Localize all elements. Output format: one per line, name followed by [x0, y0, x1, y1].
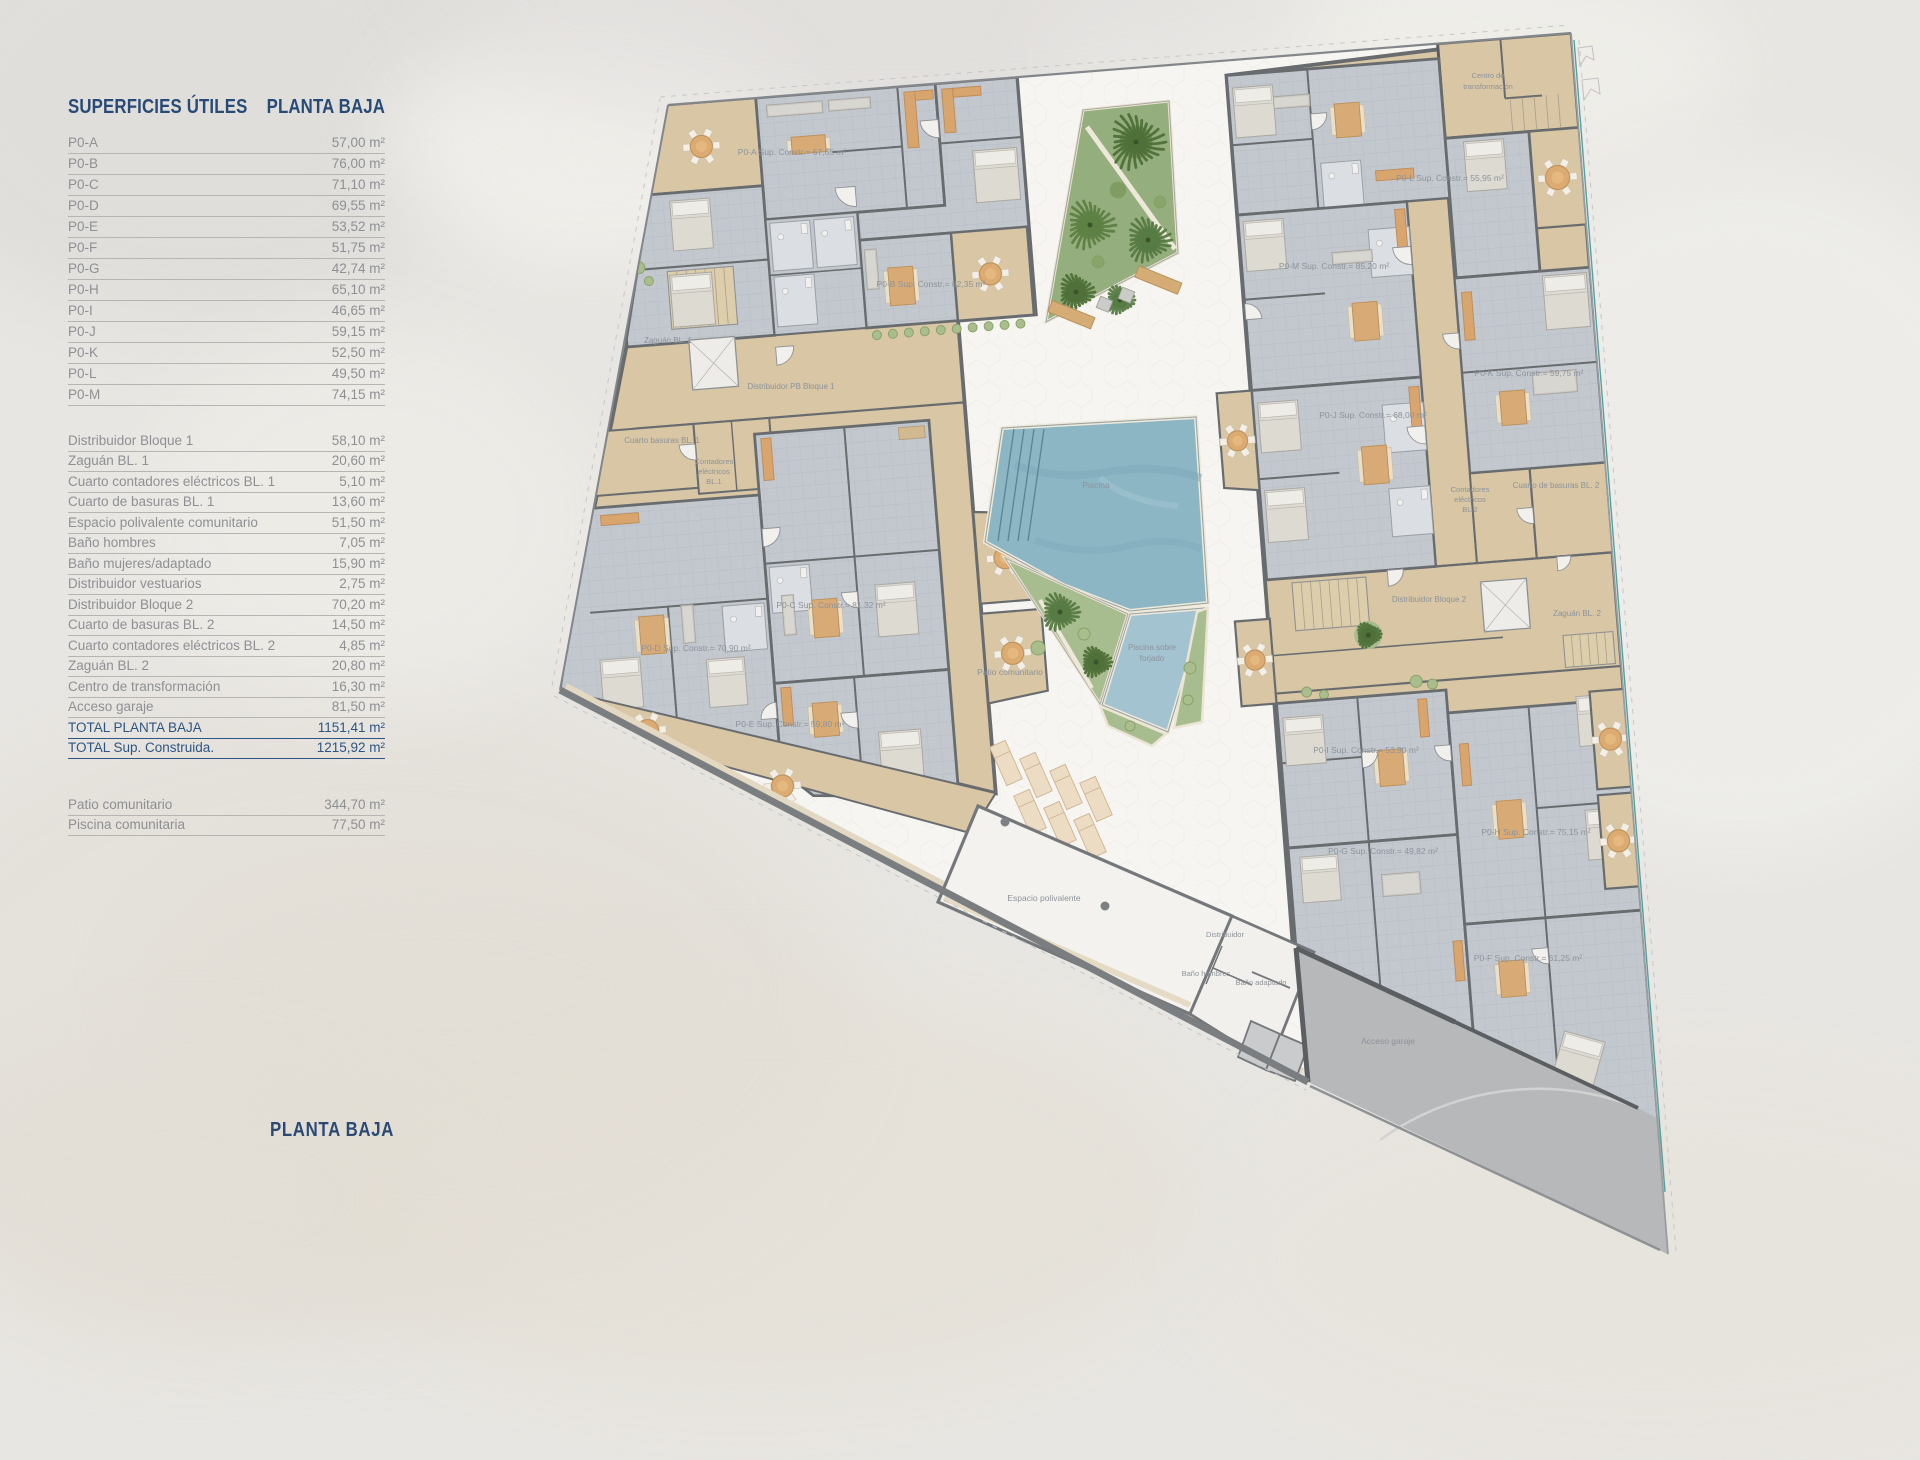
svg-text:Acceso garaje: Acceso garaje	[1361, 1036, 1415, 1046]
svg-text:P0-L Sup. Constr.= 55,95 m²: P0-L Sup. Constr.= 55,95 m²	[1396, 173, 1504, 183]
svg-text:BL.2: BL.2	[1462, 505, 1477, 514]
svg-text:P0-E Sup. Constr.= 59,80 m²: P0-E Sup. Constr.= 59,80 m²	[736, 719, 845, 729]
svg-text:eléctricos: eléctricos	[1454, 495, 1486, 504]
svg-text:Distribuidor PB Bloque 1: Distribuidor PB Bloque 1	[747, 382, 835, 391]
svg-text:Patio comunitario: Patio comunitario	[977, 667, 1043, 677]
svg-text:P0-M Sup. Constr.= 85,20 m²: P0-M Sup. Constr.= 85,20 m²	[1279, 261, 1389, 271]
svg-text:P0-B Sup. Constr.= 82,35 m²: P0-B Sup. Constr.= 82,35 m²	[877, 279, 986, 289]
svg-text:Espacio polivalente: Espacio polivalente	[1007, 893, 1081, 903]
svg-text:Centro de: Centro de	[1472, 71, 1505, 80]
svg-text:Piscina sobre: Piscina sobre	[1128, 643, 1177, 652]
svg-text:P0-G Sup. Constr.= 49,82 m²: P0-G Sup. Constr.= 49,82 m²	[1328, 846, 1438, 856]
svg-text:P0-D Sup. Constr.= 70,90 m²: P0-D Sup. Constr.= 70,90 m²	[641, 643, 751, 653]
svg-text:P0-K Sup. Constr.= 59,75 m²: P0-K Sup. Constr.= 59,75 m²	[1475, 368, 1584, 378]
svg-text:P0-C Sup. Constr.= 81,32 m²: P0-C Sup. Constr.= 81,32 m²	[776, 600, 886, 610]
svg-text:Distribuidor: Distribuidor	[1206, 930, 1244, 939]
svg-text:P0-J Sup. Constr.= 68,00 m²: P0-J Sup. Constr.= 68,00 m²	[1319, 410, 1427, 420]
svg-text:P0-H Sup. Constr.= 75,15 m²: P0-H Sup. Constr.= 75,15 m²	[1481, 827, 1591, 837]
svg-text:Contadores: Contadores	[1451, 485, 1490, 494]
svg-text:Contadores: Contadores	[695, 457, 734, 466]
svg-text:P0-A Sup. Constr.= 67,65 m²: P0-A Sup. Constr.= 67,65 m²	[738, 147, 847, 157]
svg-text:Zaguán BL. 1: Zaguán BL. 1	[644, 336, 693, 345]
svg-text:transformación: transformación	[1463, 82, 1513, 91]
svg-text:P0-F Sup. Constr.= 61,25 m²: P0-F Sup. Constr.= 61,25 m²	[1474, 953, 1583, 963]
svg-text:Zaguán BL. 2: Zaguán BL. 2	[1553, 609, 1602, 618]
svg-text:P0-I Sup. Constr.= 53,90 m²: P0-I Sup. Constr.= 53,90 m²	[1313, 745, 1419, 755]
svg-text:Piscina: Piscina	[1082, 480, 1110, 490]
svg-text:Distribuidor Bloque 2: Distribuidor Bloque 2	[1392, 595, 1467, 604]
svg-text:eléctricos: eléctricos	[698, 467, 730, 476]
svg-text:Cuarto de basuras BL. 2: Cuarto de basuras BL. 2	[1513, 481, 1600, 490]
svg-text:forjado: forjado	[1140, 654, 1165, 663]
svg-text:Baño adaptado: Baño adaptado	[1236, 978, 1287, 987]
svg-text:Cuarto basuras BL. 1: Cuarto basuras BL. 1	[624, 436, 700, 445]
svg-text:BL.1: BL.1	[706, 477, 721, 486]
svg-text:Baño hombres: Baño hombres	[1182, 969, 1231, 978]
